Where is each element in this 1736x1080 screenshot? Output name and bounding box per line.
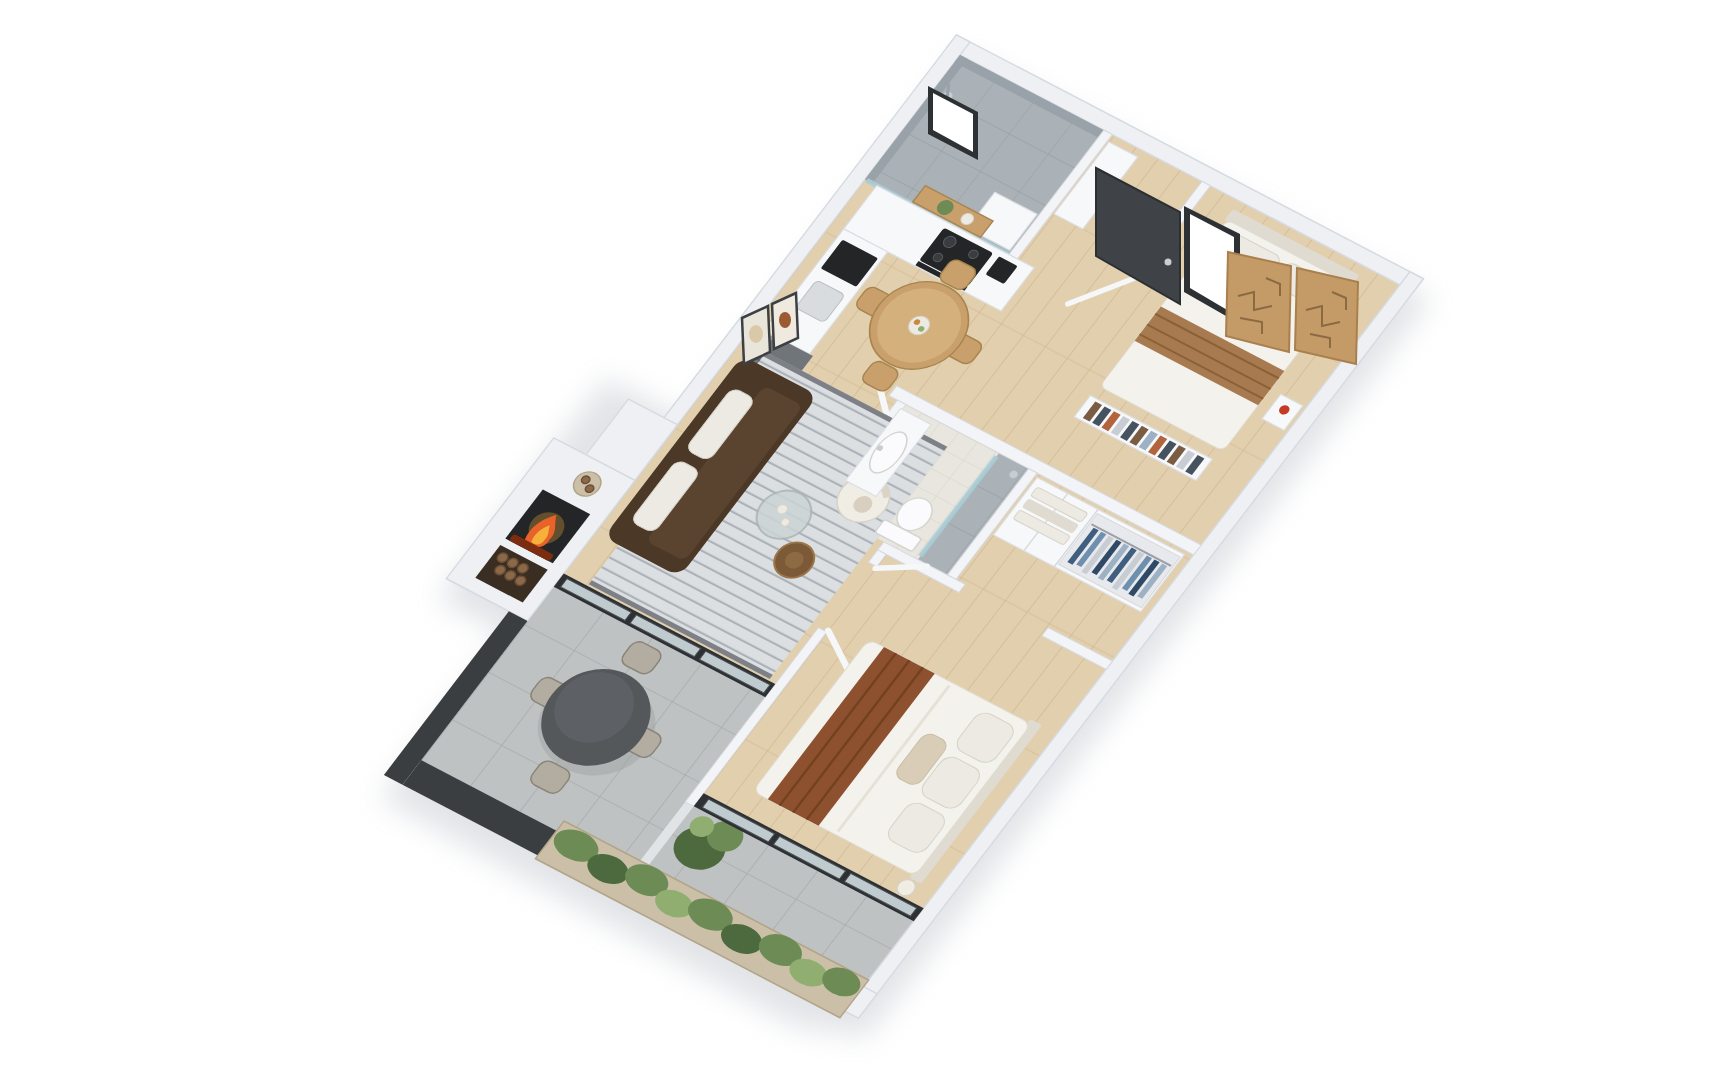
- art-motif-rust: [779, 312, 791, 328]
- art-motif-beige: [749, 325, 763, 343]
- floorplan-3d-render: [0, 0, 1736, 1080]
- entry-door-handle: [1165, 259, 1172, 266]
